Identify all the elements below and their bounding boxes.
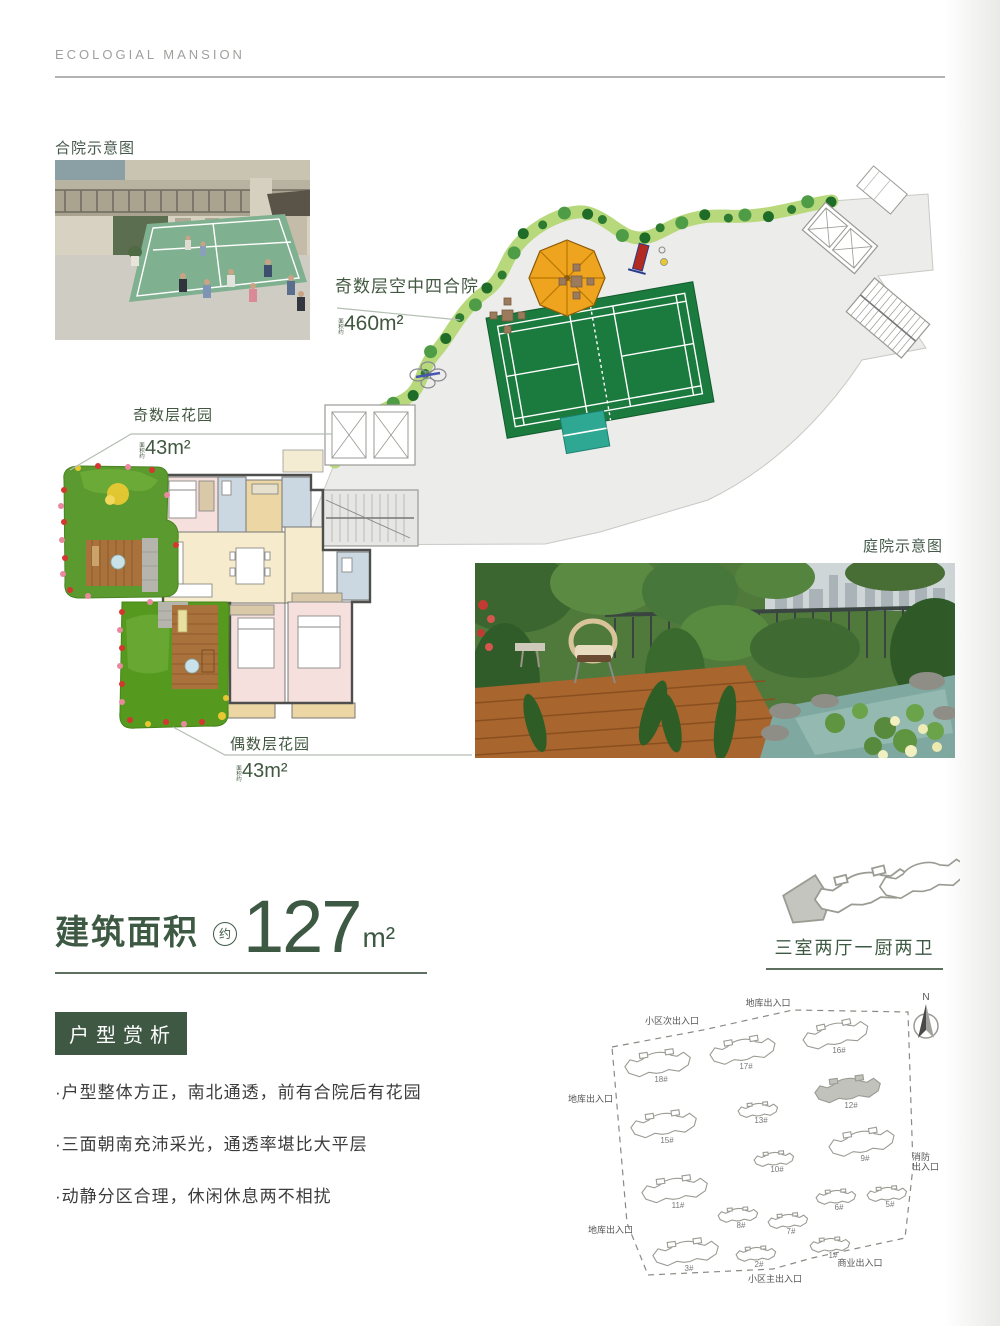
hedge-tree bbox=[498, 271, 507, 280]
hedge-tree bbox=[763, 211, 774, 222]
analysis-bullets: ·户型整体方正，南北通透，前有合院后有花园·三面朝南充沛采光，通透率堪比大平层·… bbox=[55, 1078, 525, 1234]
analysis-bullet: ·三面朝南充沛采光，通透率堪比大平层 bbox=[55, 1130, 525, 1155]
entrance-label: 小区主出入口 bbox=[748, 1273, 802, 1284]
building-number: 3# bbox=[685, 1264, 694, 1273]
building-number: 7# bbox=[787, 1227, 796, 1236]
header-divider bbox=[55, 76, 945, 78]
hedge-tree bbox=[558, 207, 571, 220]
entrance-label: 小区次出入口 bbox=[645, 1015, 699, 1026]
hedge-tree bbox=[738, 209, 751, 222]
garden-photo bbox=[475, 563, 955, 758]
brochure-page: ECOLOGIAL MANSION 合院示意图 bbox=[0, 0, 1000, 1326]
elevator-core bbox=[325, 405, 415, 465]
hedge-tree bbox=[481, 282, 492, 293]
hedge-tree bbox=[408, 390, 419, 401]
layout-underline bbox=[766, 968, 943, 970]
site-map: N 18#17#16#12#15#13#9#10#11#6#5#8#7#1#3#… bbox=[560, 990, 970, 1310]
hedge-tree bbox=[699, 209, 710, 220]
building-number: 11# bbox=[672, 1201, 685, 1210]
sitemap-building bbox=[640, 1173, 709, 1205]
sitemap-building bbox=[629, 1108, 698, 1140]
building-number: 12# bbox=[844, 1101, 858, 1110]
unit-layout-desc: 三室两厅一厨两卫 bbox=[766, 934, 943, 960]
hedge-tree bbox=[598, 215, 607, 224]
hedge-tree bbox=[724, 214, 733, 223]
unit-position-icon bbox=[780, 850, 960, 932]
sitemap-building bbox=[651, 1236, 720, 1268]
hedge-tree bbox=[616, 229, 629, 242]
sitemap-building-highlighted bbox=[813, 1073, 882, 1105]
area-label: 建筑面积 bbox=[55, 916, 199, 950]
odd-floor-garden bbox=[58, 463, 179, 599]
building-area-row: 建筑面积 约 127 m² bbox=[55, 897, 395, 958]
area-value: 127 bbox=[243, 897, 360, 958]
building-number: 8# bbox=[737, 1221, 746, 1230]
entrance-label: 地库出入口 bbox=[745, 997, 790, 1008]
hedge-tree bbox=[656, 223, 665, 232]
building-number: 15# bbox=[660, 1136, 674, 1145]
hedge-tree bbox=[538, 220, 547, 229]
entrance-label: 消防出入口 bbox=[912, 1151, 939, 1172]
area-underline bbox=[55, 972, 427, 974]
hedge-tree bbox=[424, 345, 437, 358]
hedge-tree bbox=[639, 232, 650, 243]
approx-circle: 约 bbox=[213, 922, 237, 946]
hedge-tree bbox=[801, 195, 814, 208]
building-number: 2# bbox=[755, 1260, 764, 1269]
even-floor-garden bbox=[117, 599, 229, 728]
building-number: 5# bbox=[886, 1200, 895, 1209]
compass: N bbox=[914, 992, 938, 1038]
hedge-tree bbox=[518, 228, 529, 239]
analysis-bullet: ·动静分区合理，休闲休息两不相扰 bbox=[55, 1182, 525, 1207]
hedge-tree bbox=[455, 313, 464, 322]
building-number: 10# bbox=[770, 1165, 784, 1174]
area-unit: m² bbox=[362, 924, 395, 952]
brand-title: ECOLOGIAL MANSION bbox=[55, 47, 245, 62]
pingpong-table bbox=[560, 410, 610, 453]
building-number: 9# bbox=[861, 1154, 870, 1163]
hedge-tree bbox=[440, 333, 451, 344]
hedge-tree bbox=[508, 246, 521, 259]
side-table bbox=[515, 643, 545, 651]
svg-text:N: N bbox=[922, 992, 929, 1003]
hedge-tree bbox=[469, 298, 482, 311]
analysis-bullet: ·户型整体方正，南北通透，前有合院后有花园 bbox=[55, 1078, 525, 1103]
entrance-label: 商业出入口 bbox=[837, 1257, 882, 1268]
building-number: 18# bbox=[654, 1075, 668, 1084]
hedge-tree bbox=[787, 205, 796, 214]
entrance-label: 地库出入口 bbox=[568, 1093, 613, 1104]
analysis-title: 户型赏析 bbox=[55, 1012, 187, 1055]
building-number: 16# bbox=[832, 1046, 846, 1055]
building-number: 6# bbox=[835, 1203, 844, 1212]
building-number: 13# bbox=[754, 1116, 768, 1125]
hedge-tree bbox=[675, 216, 688, 229]
sitemap-building bbox=[623, 1047, 692, 1079]
building-number: 17# bbox=[739, 1062, 753, 1071]
entrance-label: 地库出入口 bbox=[588, 1224, 633, 1235]
hedge-tree bbox=[582, 209, 593, 220]
stairwell bbox=[322, 490, 418, 546]
